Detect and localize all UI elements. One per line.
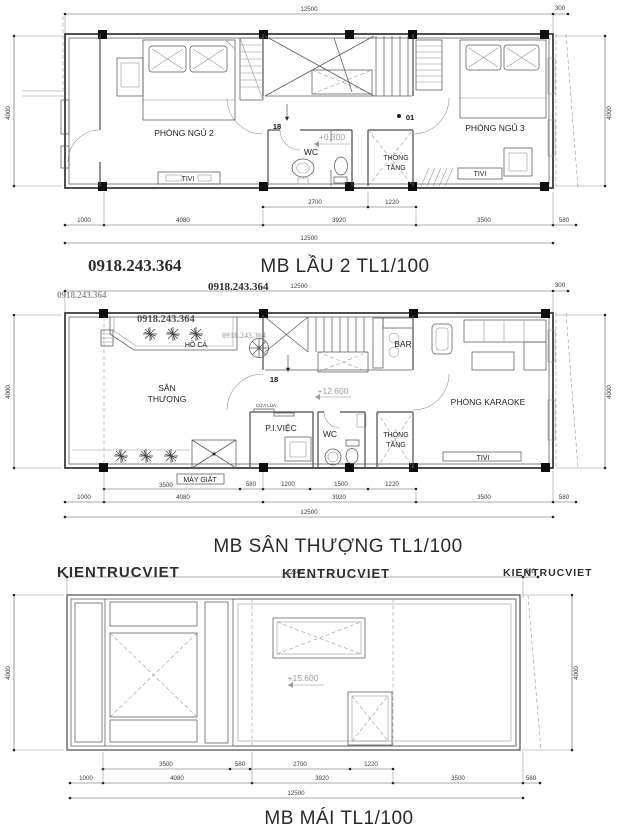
terrace-dim-main-0: 1000 bbox=[77, 494, 91, 501]
floor2-stair-number-end: 01 bbox=[406, 113, 414, 122]
floor2-label-bedroom3: PHÒNG NGỦ 3 bbox=[465, 122, 525, 133]
floor2-title: MB LẦU 2 TL1/100 bbox=[260, 255, 429, 277]
floor2-dim-sub-0: 2700 bbox=[308, 199, 322, 206]
floor2-dim-bottom-total: 12500 bbox=[300, 235, 318, 242]
watermark-brand-3: KIENTRUCVIET bbox=[503, 567, 593, 579]
roof-dim-main-1: 4080 bbox=[170, 775, 184, 782]
watermark-brand-1: KIENTRUCVIET bbox=[57, 564, 180, 581]
floor2-bedroom3-furniture bbox=[416, 40, 546, 186]
roof-dim-main-2: 3920 bbox=[315, 775, 329, 782]
terrace-label-terrace-2: THƯỢNG bbox=[148, 394, 187, 404]
floor2-stairs bbox=[265, 36, 408, 120]
watermark-brand-2: KIENTRUCVIET bbox=[282, 566, 390, 581]
floor2-dim-main-4: 580 bbox=[559, 217, 570, 224]
terrace-stairs bbox=[265, 317, 368, 372]
floor2-label-void-1: THÔNG bbox=[383, 153, 408, 162]
watermark-phone-1: 0918.243.364 bbox=[88, 256, 182, 275]
terrace-dim-sub-0: 3500 bbox=[159, 482, 173, 489]
terrace-dim-sub-1: 580 bbox=[246, 481, 257, 488]
terrace-label-work: P.I.VIỆC bbox=[265, 423, 297, 433]
watermark-phone-4: 0918.243.364 bbox=[137, 314, 196, 325]
watermark-phone-3: 0918.243.364 bbox=[57, 290, 107, 300]
terrace-label-laundry: MÁY GIẶT bbox=[183, 475, 217, 484]
plan-roof: 12500 300 4000 4000 +15.600 3500 580 270… bbox=[5, 568, 580, 829]
terrace-dim-right: 4000 bbox=[606, 385, 613, 399]
roof-dim-sub-0: 3500 bbox=[159, 761, 173, 768]
roof-dim-sub-2: 2700 bbox=[293, 761, 307, 768]
floor2-dim-main-2: 3920 bbox=[332, 217, 346, 224]
floor2-dim-left: 4000 bbox=[5, 106, 12, 120]
terrace-title: MB SÂN THƯỢNG TL1/100 bbox=[213, 535, 462, 557]
floor2-stair-number-start: 18 bbox=[273, 122, 281, 131]
floor2-dim-right: 4000 bbox=[606, 106, 613, 120]
floor2-dim-main-3: 3500 bbox=[477, 217, 491, 224]
terrace-dim-main-4: 580 bbox=[559, 494, 570, 501]
terrace-karaoke-furniture bbox=[432, 320, 546, 461]
floor2-dim-main-1: 4080 bbox=[176, 217, 190, 224]
floorplan-sheet: 12500 300 4000 4000 PHÒNG NGỦ 2 PHÒNG NG… bbox=[0, 0, 620, 834]
roof-elevation-label: +15.600 bbox=[288, 673, 319, 683]
roof-dim-bottom-total: 12500 bbox=[287, 790, 305, 797]
floor2-label-void-2: TẦNG bbox=[386, 162, 405, 172]
terrace-label-wc: WC bbox=[323, 429, 337, 439]
roof-title: MB MÁI TL1/100 bbox=[264, 808, 413, 829]
terrace-dim-sub-4: 1220 bbox=[385, 481, 399, 488]
terrace-wc bbox=[318, 412, 366, 468]
roof-dim-main-0: 1000 bbox=[79, 775, 93, 782]
floor2-elevation-label: +0.300 bbox=[319, 132, 346, 142]
terrace-dim-sub-3: 1500 bbox=[334, 481, 348, 488]
floor2-dim-main-0: 1000 bbox=[77, 217, 91, 224]
terrace-work-room bbox=[250, 409, 313, 468]
floor2-label-tivi-left: TIVI bbox=[182, 176, 195, 183]
floor2-dim-sub-1: 1220 bbox=[385, 199, 399, 206]
roof-dim-left: 4000 bbox=[5, 666, 12, 680]
terrace-void bbox=[377, 412, 413, 468]
roof-dim-main-3: 3500 bbox=[451, 775, 465, 782]
roof-dim-sub-3: 1220 bbox=[364, 761, 378, 768]
terrace-stair-number: 18 bbox=[270, 375, 278, 384]
terrace-dim-main-1: 4080 bbox=[176, 494, 190, 501]
watermarks: 0918.243.364 0918.243.364 0918.243.364 0… bbox=[57, 256, 593, 581]
terrace-label-tivi: TIVI bbox=[477, 455, 490, 462]
terrace-label-bar: BAR bbox=[394, 339, 411, 349]
plan-terrace: 12500 300 4000 4000 HỒ CÁ SÂN THƯỢNG BAR… bbox=[5, 282, 613, 557]
floor2-walls bbox=[22, 16, 578, 191]
floorplan-drawing: 12500 300 4000 4000 PHÒNG NGỦ 2 PHÒNG NG… bbox=[0, 0, 620, 834]
roof-dim-main-4: 580 bbox=[526, 775, 537, 782]
terrace-label-void-1: THÔNG bbox=[383, 430, 408, 439]
floor2-dim-top-right: 300 bbox=[555, 5, 566, 12]
plan-floor2: 12500 300 4000 4000 PHÒNG NGỦ 2 PHÒNG NG… bbox=[5, 5, 613, 277]
floor2-dim-top-total: 12500 bbox=[300, 6, 318, 13]
terrace-dim-left: 4000 bbox=[5, 385, 12, 399]
floor2-bedroom2-furniture bbox=[117, 38, 263, 184]
roof-skylight-bottom bbox=[348, 692, 392, 745]
floor2-label-wc: WC bbox=[304, 147, 318, 157]
floor2-wc-fixtures bbox=[292, 157, 348, 184]
roof-skylight-top bbox=[273, 618, 365, 658]
roof-dim-right: 4000 bbox=[573, 666, 580, 680]
watermark-phone-2: 0918.243.364 bbox=[208, 281, 269, 293]
terrace-label-karaoke: PHÒNG KARAOKE bbox=[451, 397, 526, 407]
terrace-dim-top-total: 12500 bbox=[290, 283, 308, 290]
roof-dim-sub-1: 580 bbox=[235, 761, 246, 768]
terrace-label-void-2: TẦNG bbox=[386, 439, 405, 449]
watermark-phone-5: 0918.243.364 bbox=[222, 331, 266, 340]
floor2-label-bedroom2: PHÒNG NGỦ 2 bbox=[154, 127, 214, 138]
floor2-label-tivi-right: TIVI bbox=[474, 171, 487, 178]
terrace-dim-bottom-total: 12500 bbox=[300, 509, 318, 516]
terrace-dim-main-3: 3500 bbox=[477, 494, 491, 501]
terrace-elevation-label: +12.600 bbox=[318, 386, 349, 396]
terrace-dim-sub-2: 1200 bbox=[281, 481, 295, 488]
terrace-dim-main-2: 3920 bbox=[332, 494, 346, 501]
terrace-label-terrace-1: SÂN bbox=[158, 383, 175, 393]
terrace-dim-top-right: 300 bbox=[555, 282, 566, 289]
terrace-fan-plant bbox=[250, 339, 269, 358]
terrace-label-sliding-door: CỬA LÙA bbox=[256, 402, 277, 408]
